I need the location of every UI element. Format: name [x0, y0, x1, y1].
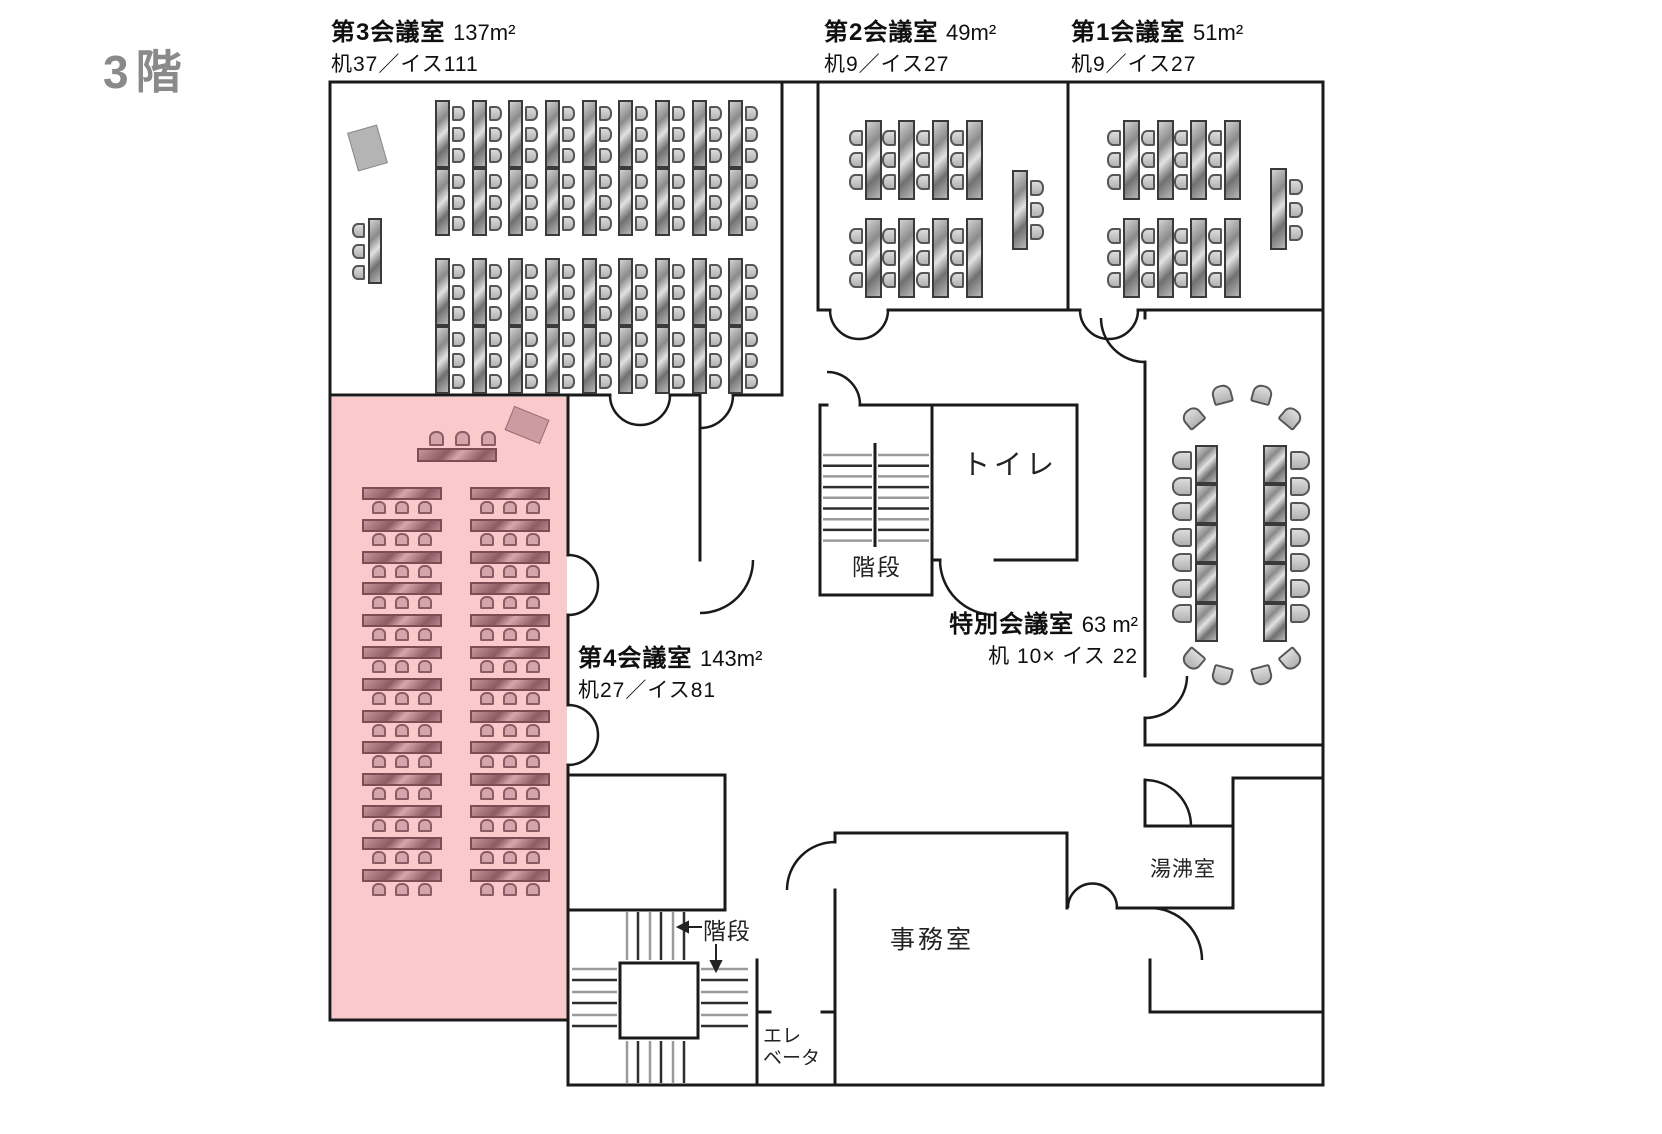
table: [545, 168, 560, 236]
table: [1263, 445, 1287, 484]
chair: [672, 148, 685, 163]
chair: [489, 174, 502, 189]
chair: [849, 130, 863, 146]
chair: [503, 755, 517, 768]
table: [362, 710, 442, 723]
door-swing-icon: [1080, 310, 1109, 339]
table: [545, 100, 560, 168]
chair: [672, 264, 685, 279]
table: [470, 582, 550, 595]
chair: [372, 596, 386, 609]
table: [655, 258, 670, 326]
door-swing-icon: [1145, 676, 1187, 718]
table: [655, 100, 670, 168]
elevator-label-line1: エレ: [763, 1026, 820, 1048]
table: [582, 258, 597, 326]
office-label: 事務室: [890, 920, 974, 956]
table: [728, 326, 743, 394]
chair: [1174, 130, 1188, 146]
room1-area: 51m²: [1193, 20, 1243, 45]
chair: [480, 565, 494, 578]
chair: [599, 306, 612, 321]
chair: [1174, 228, 1188, 244]
chair: [635, 106, 648, 121]
chair: [525, 174, 538, 189]
chair: [372, 851, 386, 864]
table: [470, 805, 550, 818]
chair: [1290, 604, 1310, 623]
door-swing-icon: [1101, 318, 1145, 362]
chair: [709, 106, 722, 121]
chair: [1250, 664, 1274, 688]
door-swing-icon: [700, 560, 753, 613]
door-swing-icon: [610, 395, 640, 425]
head-table: [1270, 168, 1287, 250]
stair-core: [620, 963, 698, 1038]
chair: [372, 501, 386, 514]
chair: [526, 660, 540, 673]
chair: [599, 353, 612, 368]
chair: [352, 223, 365, 238]
chair: [503, 787, 517, 800]
chair: [395, 565, 409, 578]
special-room-label: 特別会議室 63 m² 机 10× イス 22: [926, 612, 1138, 670]
table: [362, 773, 442, 786]
chair: [599, 174, 612, 189]
chair: [709, 264, 722, 279]
chair: [635, 127, 648, 142]
table: [470, 487, 550, 500]
chair: [395, 533, 409, 546]
chair: [452, 148, 465, 163]
chair: [526, 883, 540, 896]
table: [470, 678, 550, 691]
chair: [916, 130, 930, 146]
chair: [599, 148, 612, 163]
table: [1263, 484, 1287, 523]
chair: [418, 628, 432, 641]
chair: [489, 148, 502, 163]
chair: [1141, 272, 1155, 288]
table: [362, 582, 442, 595]
chair: [526, 501, 540, 514]
chair: [480, 596, 494, 609]
room4-area: 143m²: [700, 646, 762, 671]
chair: [395, 596, 409, 609]
chair: [672, 127, 685, 142]
chair: [480, 724, 494, 737]
chair: [1290, 579, 1310, 598]
kitchenette-label: 湯沸室: [1150, 853, 1216, 883]
chair: [1174, 272, 1188, 288]
elevator-label: エレ ベータ: [763, 1026, 820, 1070]
chair: [1107, 228, 1121, 244]
chair: [372, 787, 386, 800]
table: [618, 326, 633, 394]
chair: [1172, 553, 1192, 572]
chair: [1174, 250, 1188, 266]
chair: [452, 127, 465, 142]
chair: [709, 174, 722, 189]
floor-plan: 3階 第3会議室 137m² 机37／イス111 第2会議室 49m² 机9／イ…: [0, 0, 1662, 1134]
chair: [562, 353, 575, 368]
room3-area: 137m²: [453, 20, 515, 45]
table: [435, 168, 450, 236]
chair: [562, 332, 575, 347]
table: [728, 168, 743, 236]
table: [508, 258, 523, 326]
table: [362, 487, 442, 500]
chair: [635, 374, 648, 389]
chair: [372, 724, 386, 737]
table: [470, 519, 550, 532]
chair: [1208, 130, 1222, 146]
chair: [882, 130, 896, 146]
chair: [1174, 152, 1188, 168]
chair: [525, 148, 538, 163]
table: [362, 678, 442, 691]
door-swing-icon: [787, 842, 835, 890]
chair: [452, 374, 465, 389]
room4-name: 第4会議室: [578, 645, 692, 672]
chair: [672, 195, 685, 210]
chair: [916, 228, 930, 244]
room4-label: 第4会議室 143m² 机27／イス81: [578, 646, 762, 704]
chair: [480, 787, 494, 800]
table: [472, 168, 487, 236]
chair: [849, 250, 863, 266]
door-swing-icon: [859, 310, 888, 339]
chair: [882, 152, 896, 168]
table: [508, 100, 523, 168]
table: [1263, 524, 1287, 563]
chair: [1030, 202, 1044, 218]
chair: [849, 152, 863, 168]
chair: [525, 353, 538, 368]
table: [1190, 120, 1207, 200]
chair: [849, 174, 863, 190]
table: [618, 258, 633, 326]
chair: [672, 174, 685, 189]
chair: [562, 127, 575, 142]
chair: [503, 533, 517, 546]
chair: [1179, 404, 1207, 431]
chair: [635, 353, 648, 368]
room2-label: 第2会議室 49m² 机9／イス27: [824, 20, 996, 78]
chair: [916, 152, 930, 168]
chair: [950, 130, 964, 146]
chair: [525, 306, 538, 321]
table: [362, 741, 442, 754]
door-swing-icon: [1150, 908, 1202, 960]
chair: [1290, 528, 1310, 547]
chair: [372, 883, 386, 896]
table: [470, 741, 550, 754]
chair: [1250, 383, 1274, 407]
table: [508, 326, 523, 394]
chair: [916, 174, 930, 190]
table: [470, 646, 550, 659]
chair: [503, 851, 517, 864]
table: [1190, 218, 1207, 298]
chair: [672, 374, 685, 389]
chair: [503, 660, 517, 673]
chair: [452, 106, 465, 121]
chair: [480, 819, 494, 832]
table: [692, 258, 707, 326]
chair: [1277, 404, 1305, 431]
chair: [525, 106, 538, 121]
chair: [709, 374, 722, 389]
table: [1195, 524, 1218, 563]
door-swing-icon: [568, 555, 598, 585]
table: [728, 100, 743, 168]
table: [508, 168, 523, 236]
table: [1263, 563, 1287, 602]
chair: [452, 195, 465, 210]
chair: [562, 148, 575, 163]
chair: [372, 565, 386, 578]
room2-area: 49m²: [946, 20, 996, 45]
table: [435, 100, 450, 168]
stairs-middle-label: 階段: [852, 548, 902, 582]
table: [470, 773, 550, 786]
special-room-area: 63 m²: [1082, 612, 1138, 637]
chair: [452, 264, 465, 279]
chair: [481, 431, 496, 446]
chair: [1290, 451, 1310, 470]
chair: [745, 106, 758, 121]
chair: [562, 174, 575, 189]
chair: [745, 127, 758, 142]
chair: [395, 883, 409, 896]
chair: [525, 285, 538, 300]
chair: [882, 250, 896, 266]
chair: [1208, 272, 1222, 288]
chair: [1289, 202, 1303, 218]
table: [898, 218, 915, 298]
arrow-left-icon: [678, 922, 688, 932]
chair: [950, 250, 964, 266]
table: [898, 120, 915, 200]
chair: [526, 819, 540, 832]
chair: [489, 374, 502, 389]
chair: [635, 195, 648, 210]
chair: [562, 216, 575, 231]
table: [545, 326, 560, 394]
door-swing-icon: [568, 585, 598, 615]
chair: [503, 819, 517, 832]
chair: [526, 533, 540, 546]
chair: [745, 285, 758, 300]
chair: [562, 195, 575, 210]
chair: [395, 501, 409, 514]
chair: [418, 883, 432, 896]
room1-name: 第1会議室: [1071, 19, 1185, 46]
chair: [372, 628, 386, 641]
table: [1195, 484, 1218, 523]
chair: [672, 216, 685, 231]
table: [692, 100, 707, 168]
table: [1157, 218, 1174, 298]
chair: [745, 306, 758, 321]
head-table: [368, 218, 382, 284]
chair: [1174, 174, 1188, 190]
chair: [1208, 174, 1222, 190]
chair: [635, 174, 648, 189]
chair: [452, 285, 465, 300]
chair: [480, 883, 494, 896]
chair: [480, 501, 494, 514]
table: [1195, 445, 1218, 484]
room1-label: 第1会議室 51m² 机9／イス27: [1071, 20, 1243, 78]
chair: [526, 755, 540, 768]
chair: [526, 724, 540, 737]
door-swing-icon: [700, 395, 733, 428]
chair: [372, 533, 386, 546]
chair: [1107, 272, 1121, 288]
table: [435, 326, 450, 394]
table: [582, 100, 597, 168]
chair: [395, 628, 409, 641]
table: [472, 258, 487, 326]
table: [692, 168, 707, 236]
door-swing-icon: [827, 372, 860, 405]
table: [470, 837, 550, 850]
chair: [418, 819, 432, 832]
chair: [395, 819, 409, 832]
table: [692, 326, 707, 394]
chair: [526, 565, 540, 578]
chair: [1172, 604, 1192, 623]
chair: [395, 851, 409, 864]
chair: [1141, 174, 1155, 190]
chair: [526, 596, 540, 609]
chair: [352, 244, 365, 259]
chair: [672, 332, 685, 347]
chair: [526, 851, 540, 864]
chair: [372, 819, 386, 832]
table: [435, 258, 450, 326]
chair: [372, 755, 386, 768]
chair: [489, 195, 502, 210]
chair: [672, 306, 685, 321]
chair: [1141, 130, 1155, 146]
chair: [950, 174, 964, 190]
chair: [1208, 228, 1222, 244]
chair: [489, 285, 502, 300]
chair: [418, 565, 432, 578]
chair: [599, 374, 612, 389]
chair: [480, 755, 494, 768]
chair: [849, 272, 863, 288]
chair: [489, 353, 502, 368]
chair: [882, 174, 896, 190]
chair: [1290, 553, 1310, 572]
special-room-capacity: 机 10× イス 22: [926, 640, 1138, 670]
chair: [418, 596, 432, 609]
head-table: [1012, 170, 1028, 250]
chair: [672, 285, 685, 300]
room4-capacity: 机27／イス81: [578, 674, 762, 704]
chair: [1107, 130, 1121, 146]
chair: [418, 660, 432, 673]
chair: [745, 216, 758, 231]
table: [362, 614, 442, 627]
chair: [452, 306, 465, 321]
chair: [882, 228, 896, 244]
table: [362, 551, 442, 564]
chair: [950, 152, 964, 168]
table: [1263, 603, 1287, 642]
chair: [562, 106, 575, 121]
table: [1224, 218, 1241, 298]
table: [1123, 120, 1140, 200]
stairs-middle-icon: [823, 443, 929, 547]
table: [865, 218, 882, 298]
chair: [418, 533, 432, 546]
door-swing-icon: [640, 395, 670, 425]
chair: [1290, 502, 1310, 521]
chair: [526, 628, 540, 641]
table: [932, 120, 949, 200]
chair: [1210, 383, 1234, 407]
table: [472, 100, 487, 168]
chair: [1172, 579, 1192, 598]
chair: [489, 264, 502, 279]
chair: [525, 374, 538, 389]
table: [470, 614, 550, 627]
chair: [452, 216, 465, 231]
chair: [599, 332, 612, 347]
chair: [709, 195, 722, 210]
chair: [480, 660, 494, 673]
chair: [916, 272, 930, 288]
chair: [503, 724, 517, 737]
chair: [1290, 477, 1310, 496]
chair: [1030, 224, 1044, 240]
chair: [1172, 477, 1192, 496]
chair: [418, 755, 432, 768]
chair: [745, 148, 758, 163]
chair: [562, 264, 575, 279]
chair: [1141, 152, 1155, 168]
chair: [1107, 152, 1121, 168]
door-swing-icon: [568, 705, 598, 735]
chair: [745, 332, 758, 347]
chair: [1210, 664, 1234, 688]
chair: [418, 501, 432, 514]
room3-capacity: 机37／イス111: [331, 48, 515, 78]
chair: [503, 501, 517, 514]
chair: [1107, 250, 1121, 266]
room2-name: 第2会議室: [824, 19, 938, 46]
chair: [599, 127, 612, 142]
chair: [489, 216, 502, 231]
chair: [429, 431, 444, 446]
table: [1123, 218, 1140, 298]
chair: [503, 596, 517, 609]
chair: [1141, 228, 1155, 244]
chair: [418, 787, 432, 800]
door-swing-icon: [568, 735, 598, 765]
chair: [635, 216, 648, 231]
chair: [352, 265, 365, 280]
chair: [635, 264, 648, 279]
chair: [950, 272, 964, 288]
chair: [395, 660, 409, 673]
table: [470, 551, 550, 564]
